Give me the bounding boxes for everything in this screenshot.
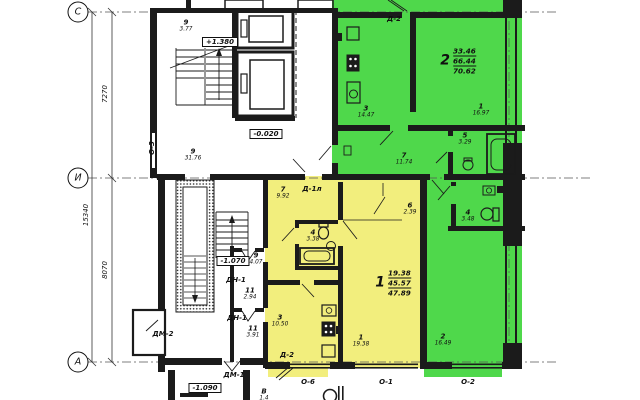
room-label: 79.92 bbox=[277, 186, 290, 201]
room-label: 119.38 bbox=[353, 334, 370, 349]
room-label: 43.48 bbox=[462, 209, 475, 224]
window-tag: О-3 bbox=[148, 141, 156, 155]
room-label: 931.76 bbox=[185, 148, 202, 163]
dim-total: 15340 bbox=[82, 204, 90, 226]
dimension-lines bbox=[88, 8, 116, 366]
room-label: 94.07 bbox=[250, 252, 263, 267]
door-tag: ДН-1 bbox=[226, 276, 246, 284]
door-tag: ДМ-1 bbox=[224, 371, 245, 379]
dim-i-a: 8070 bbox=[101, 261, 109, 279]
window-tag: О-1 bbox=[379, 378, 393, 386]
room-label: 314.47 bbox=[358, 105, 375, 120]
axis-bubble-i: И bbox=[68, 168, 89, 189]
room-label: 62.39 bbox=[404, 202, 417, 217]
walls-mid-row bbox=[157, 174, 525, 180]
room-label: 711.74 bbox=[396, 152, 413, 167]
stair-shaft-lower bbox=[176, 180, 214, 312]
axis-bubble-c: С bbox=[68, 2, 89, 23]
room-label: 53.29 bbox=[459, 132, 472, 147]
door-tag: Д-2 bbox=[280, 351, 294, 359]
level-mark: -0.020 bbox=[249, 129, 282, 139]
door-tag: Д-1л bbox=[302, 185, 321, 193]
window-tag: О-6 bbox=[301, 378, 315, 386]
stairs-upper-icon bbox=[170, 44, 234, 105]
stove-icon bbox=[322, 322, 335, 336]
room-label: 93.77 bbox=[180, 19, 193, 34]
floor-plan: С И А 15340 7270 8070 +1.380 -0.020 -1.0… bbox=[0, 0, 640, 400]
apartment-1-areas: 1 19.38 45.57 47.89 bbox=[375, 269, 411, 298]
apartment-2-areas: 2 33.46 66.44 70.62 bbox=[440, 47, 476, 76]
room-label: 43.38 bbox=[307, 229, 320, 244]
plan-linework bbox=[0, 0, 640, 400]
entrance-canopy bbox=[225, 0, 333, 9]
dim-c-i: 7270 bbox=[101, 85, 109, 103]
level-mark: -1.070 bbox=[216, 256, 249, 266]
door-tag: ДМ-2 bbox=[153, 330, 174, 338]
room-label: 112.94 bbox=[244, 287, 257, 302]
elevator-icon bbox=[237, 10, 296, 118]
window-tag: О-2 bbox=[461, 378, 475, 386]
level-mark: +1.380 bbox=[202, 37, 238, 47]
room-label: 216.49 bbox=[435, 333, 452, 348]
room-label: 116.97 bbox=[473, 103, 490, 118]
balcony-bottom bbox=[324, 386, 344, 400]
room-label: В1.4 bbox=[259, 388, 268, 400]
room-label: 113.91 bbox=[247, 325, 260, 340]
axis-bubble-a: А bbox=[68, 352, 89, 373]
room-label: 310.50 bbox=[272, 314, 289, 329]
column-icon bbox=[324, 390, 337, 400]
door-tag: Д-2 bbox=[387, 15, 401, 23]
door-tag: ДН-1 bbox=[227, 314, 247, 322]
level-mark: -1.090 bbox=[188, 383, 221, 393]
stove-icon bbox=[347, 55, 359, 71]
